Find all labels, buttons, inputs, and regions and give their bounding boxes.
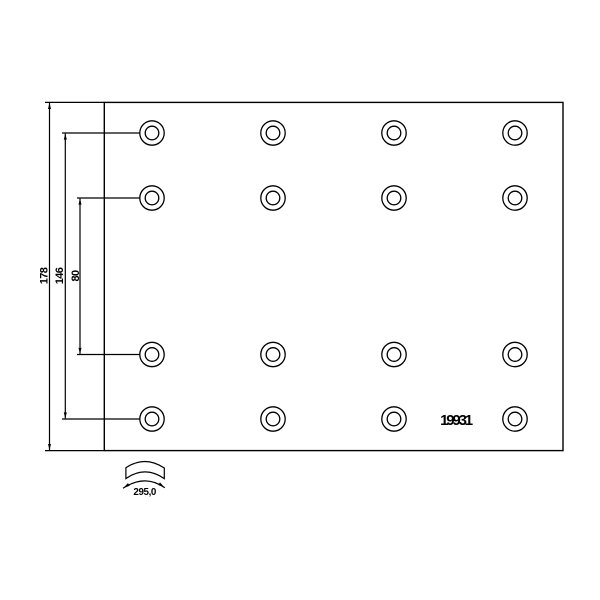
svg-text:80: 80 [70,270,82,282]
svg-text:146: 146 [54,267,66,284]
svg-text:19931: 19931 [440,412,473,429]
svg-text:178: 178 [38,267,50,284]
svg-text:295,0: 295,0 [133,487,156,498]
